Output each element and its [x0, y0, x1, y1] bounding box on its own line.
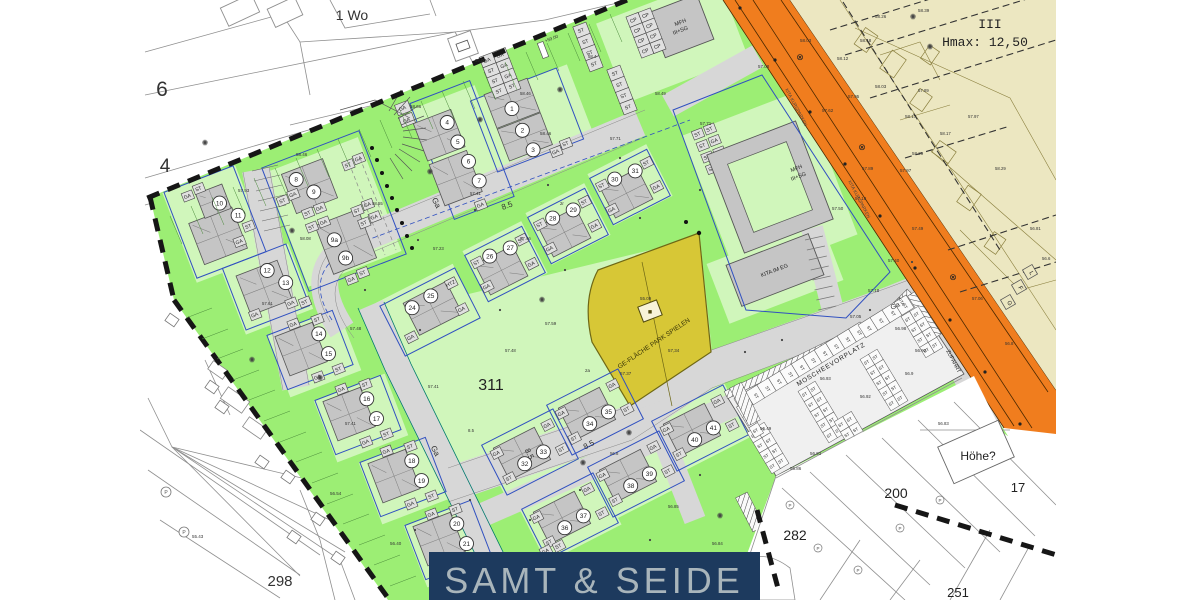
- svg-text:58.26: 58.26: [875, 14, 887, 19]
- svg-text:58.29: 58.29: [912, 151, 924, 156]
- svg-text:58.12: 58.12: [837, 56, 849, 61]
- svg-text:57.95: 57.95: [848, 94, 860, 99]
- svg-text:✺: ✺: [927, 43, 934, 52]
- svg-text:58.17: 58.17: [940, 131, 951, 136]
- svg-text:56.6: 56.6: [1042, 256, 1051, 261]
- svg-text:57.50: 57.50: [832, 206, 844, 211]
- svg-text:58.17: 58.17: [905, 114, 917, 119]
- svg-text:9: 9: [312, 189, 316, 196]
- svg-text:56.93: 56.93: [820, 376, 831, 381]
- svg-text:10: 10: [216, 200, 224, 207]
- svg-text:18: 18: [408, 458, 416, 465]
- svg-text:58.4: 58.4: [588, 54, 597, 59]
- svg-text:3: 3: [531, 147, 535, 154]
- svg-text:200: 200: [884, 485, 908, 501]
- svg-text:33: 33: [540, 449, 548, 456]
- svg-text:2a: 2a: [585, 368, 591, 373]
- svg-text:311: 311: [478, 377, 504, 394]
- svg-text:57.46: 57.46: [520, 236, 531, 241]
- svg-text:13: 13: [282, 280, 290, 287]
- svg-text:25: 25: [427, 293, 435, 300]
- svg-text:57.97: 57.97: [968, 114, 979, 119]
- svg-text:251: 251: [947, 585, 969, 600]
- svg-text:57.59: 57.59: [545, 321, 557, 326]
- svg-text:8: 8: [294, 177, 298, 184]
- svg-text:56.84: 56.84: [712, 541, 723, 546]
- svg-text:57.41: 57.41: [345, 421, 356, 426]
- svg-text:9b: 9b: [342, 255, 350, 262]
- svg-text:14: 14: [315, 331, 323, 338]
- svg-text:56.81: 56.81: [1030, 226, 1041, 231]
- svg-text:57.41: 57.41: [428, 384, 439, 389]
- svg-text:✺: ✺: [717, 512, 724, 521]
- svg-text:58.46: 58.46: [540, 131, 552, 136]
- svg-text:58.39: 58.39: [918, 8, 930, 13]
- svg-text:2r: 2r: [560, 201, 564, 206]
- svg-text:29: 29: [570, 207, 578, 214]
- svg-text:III: III: [978, 17, 1001, 32]
- svg-text:57.97: 57.97: [900, 168, 912, 173]
- svg-text:30: 30: [611, 176, 619, 183]
- svg-text:57.89: 57.89: [918, 88, 929, 93]
- svg-text:4: 4: [160, 156, 171, 177]
- svg-text:17: 17: [373, 416, 381, 423]
- svg-text:✺: ✺: [580, 459, 587, 468]
- svg-text:57.61: 57.61: [262, 301, 273, 306]
- svg-text:58.06: 58.06: [410, 104, 422, 109]
- svg-text:57.93: 57.93: [238, 188, 250, 193]
- svg-text:38: 38: [627, 483, 635, 490]
- svg-text:58.18: 58.18: [860, 38, 872, 43]
- svg-text:15: 15: [325, 351, 333, 358]
- svg-text:32: 32: [521, 461, 529, 468]
- svg-text:58.08: 58.08: [300, 236, 311, 241]
- svg-text:57.89: 57.89: [862, 166, 874, 171]
- svg-text:57.08: 57.08: [758, 64, 770, 69]
- svg-text:57.48: 57.48: [350, 326, 362, 331]
- svg-text:17: 17: [1011, 480, 1025, 495]
- svg-text:56.92: 56.92: [860, 394, 871, 399]
- svg-text:58.46: 58.46: [520, 91, 531, 96]
- svg-text:57.49: 57.49: [912, 226, 924, 231]
- svg-text:35: 35: [605, 409, 613, 416]
- svg-text:57.18: 57.18: [868, 288, 880, 293]
- svg-text:P: P: [856, 568, 859, 573]
- svg-text:1 Wo: 1 Wo: [336, 7, 369, 23]
- svg-text:✺: ✺: [427, 168, 434, 177]
- svg-text:SAMT & SEIDE: SAMT & SEIDE: [444, 560, 743, 600]
- svg-text:24: 24: [408, 305, 416, 312]
- svg-text:56.98: 56.98: [895, 326, 907, 331]
- svg-text:56.8: 56.8: [610, 451, 619, 456]
- svg-text:20: 20: [453, 521, 461, 528]
- svg-text:■: ■: [648, 309, 652, 316]
- svg-text:✺: ✺: [626, 429, 633, 438]
- svg-text:56.85: 56.85: [668, 504, 679, 509]
- svg-text:56.83: 56.83: [938, 421, 949, 426]
- svg-text:58.29: 58.29: [995, 166, 1006, 171]
- svg-text:39: 39: [646, 471, 654, 478]
- svg-text:P: P: [898, 526, 901, 531]
- svg-text:57.62: 57.62: [822, 108, 834, 113]
- svg-text:57.41: 57.41: [470, 191, 481, 196]
- svg-text:16: 16: [363, 396, 371, 403]
- svg-text:6: 6: [156, 78, 168, 101]
- svg-text:57.71: 57.71: [610, 136, 621, 141]
- svg-text:56.8: 56.8: [1005, 341, 1014, 346]
- svg-text:58.03: 58.03: [875, 84, 887, 89]
- svg-text:26: 26: [486, 253, 494, 260]
- svg-text:58.49: 58.49: [655, 91, 666, 96]
- svg-text:✺: ✺: [477, 116, 484, 125]
- svg-text:1: 1: [510, 106, 514, 113]
- svg-text:✺: ✺: [202, 139, 209, 148]
- svg-text:P: P: [816, 546, 819, 551]
- svg-text:56.86: 56.86: [790, 466, 802, 471]
- svg-text:12: 12: [264, 268, 272, 275]
- svg-text:55.09: 55.09: [640, 296, 652, 301]
- svg-text:34: 34: [586, 421, 594, 428]
- svg-text:11: 11: [235, 212, 242, 219]
- svg-text:56.92: 56.92: [915, 348, 927, 353]
- svg-text:57,34: 57,34: [668, 348, 680, 353]
- svg-text:P: P: [788, 503, 791, 508]
- svg-text:2: 2: [521, 128, 525, 135]
- svg-text:✺: ✺: [289, 227, 296, 236]
- svg-text:56.93: 56.93: [810, 451, 822, 456]
- svg-text:9a: 9a: [331, 237, 339, 244]
- svg-text:21: 21: [463, 541, 471, 548]
- svg-text:8.5: 8.5: [468, 428, 475, 433]
- svg-text:57.71: 57.71: [700, 121, 712, 126]
- svg-text:56.9: 56.9: [905, 371, 914, 376]
- svg-text:✺: ✺: [557, 86, 564, 95]
- svg-text:✺: ✺: [910, 13, 917, 22]
- svg-text:31: 31: [632, 168, 640, 175]
- svg-text:57.48: 57.48: [505, 348, 516, 353]
- svg-text:P: P: [938, 498, 941, 503]
- svg-text:✺: ✺: [539, 296, 546, 305]
- svg-text:57.37: 57.37: [620, 371, 632, 376]
- svg-text:58.03: 58.03: [800, 38, 812, 43]
- svg-text:4: 4: [445, 120, 449, 127]
- svg-text:19: 19: [418, 478, 426, 485]
- svg-text:55.43: 55.43: [192, 534, 204, 539]
- svg-text:6: 6: [467, 159, 471, 166]
- svg-text:41: 41: [710, 425, 718, 432]
- svg-text:36: 36: [561, 525, 569, 532]
- svg-text:58.55: 58.55: [372, 201, 383, 206]
- svg-text:⊗: ⊗: [796, 52, 804, 62]
- svg-text:27: 27: [507, 245, 515, 252]
- svg-text:28: 28: [549, 215, 557, 222]
- svg-text:56.40: 56.40: [390, 541, 402, 546]
- svg-text:58.46: 58.46: [296, 152, 308, 157]
- svg-text:57.23: 57.23: [433, 246, 444, 251]
- svg-text:7: 7: [477, 178, 481, 185]
- svg-text:57.05: 57.05: [850, 314, 862, 319]
- svg-text:✺: ✺: [317, 374, 324, 383]
- svg-text:56.54: 56.54: [330, 491, 342, 496]
- svg-text:57.06: 57.06: [972, 296, 983, 301]
- svg-text:✺: ✺: [249, 356, 256, 365]
- svg-text:298: 298: [267, 573, 292, 590]
- svg-text:56.49: 56.49: [760, 426, 772, 431]
- svg-text:Höhe?: Höhe?: [960, 449, 996, 463]
- svg-text:⊗: ⊗: [949, 272, 957, 282]
- svg-text:5: 5: [456, 139, 460, 146]
- svg-text:59.00: 59.00: [475, 58, 486, 63]
- svg-text:57.40: 57.40: [888, 258, 900, 263]
- svg-text:Hmax: 12,50: Hmax: 12,50: [942, 35, 1028, 50]
- svg-text:37: 37: [580, 513, 588, 520]
- svg-text:282: 282: [783, 527, 807, 543]
- svg-text:⊗: ⊗: [858, 142, 866, 152]
- svg-text:40: 40: [691, 437, 699, 444]
